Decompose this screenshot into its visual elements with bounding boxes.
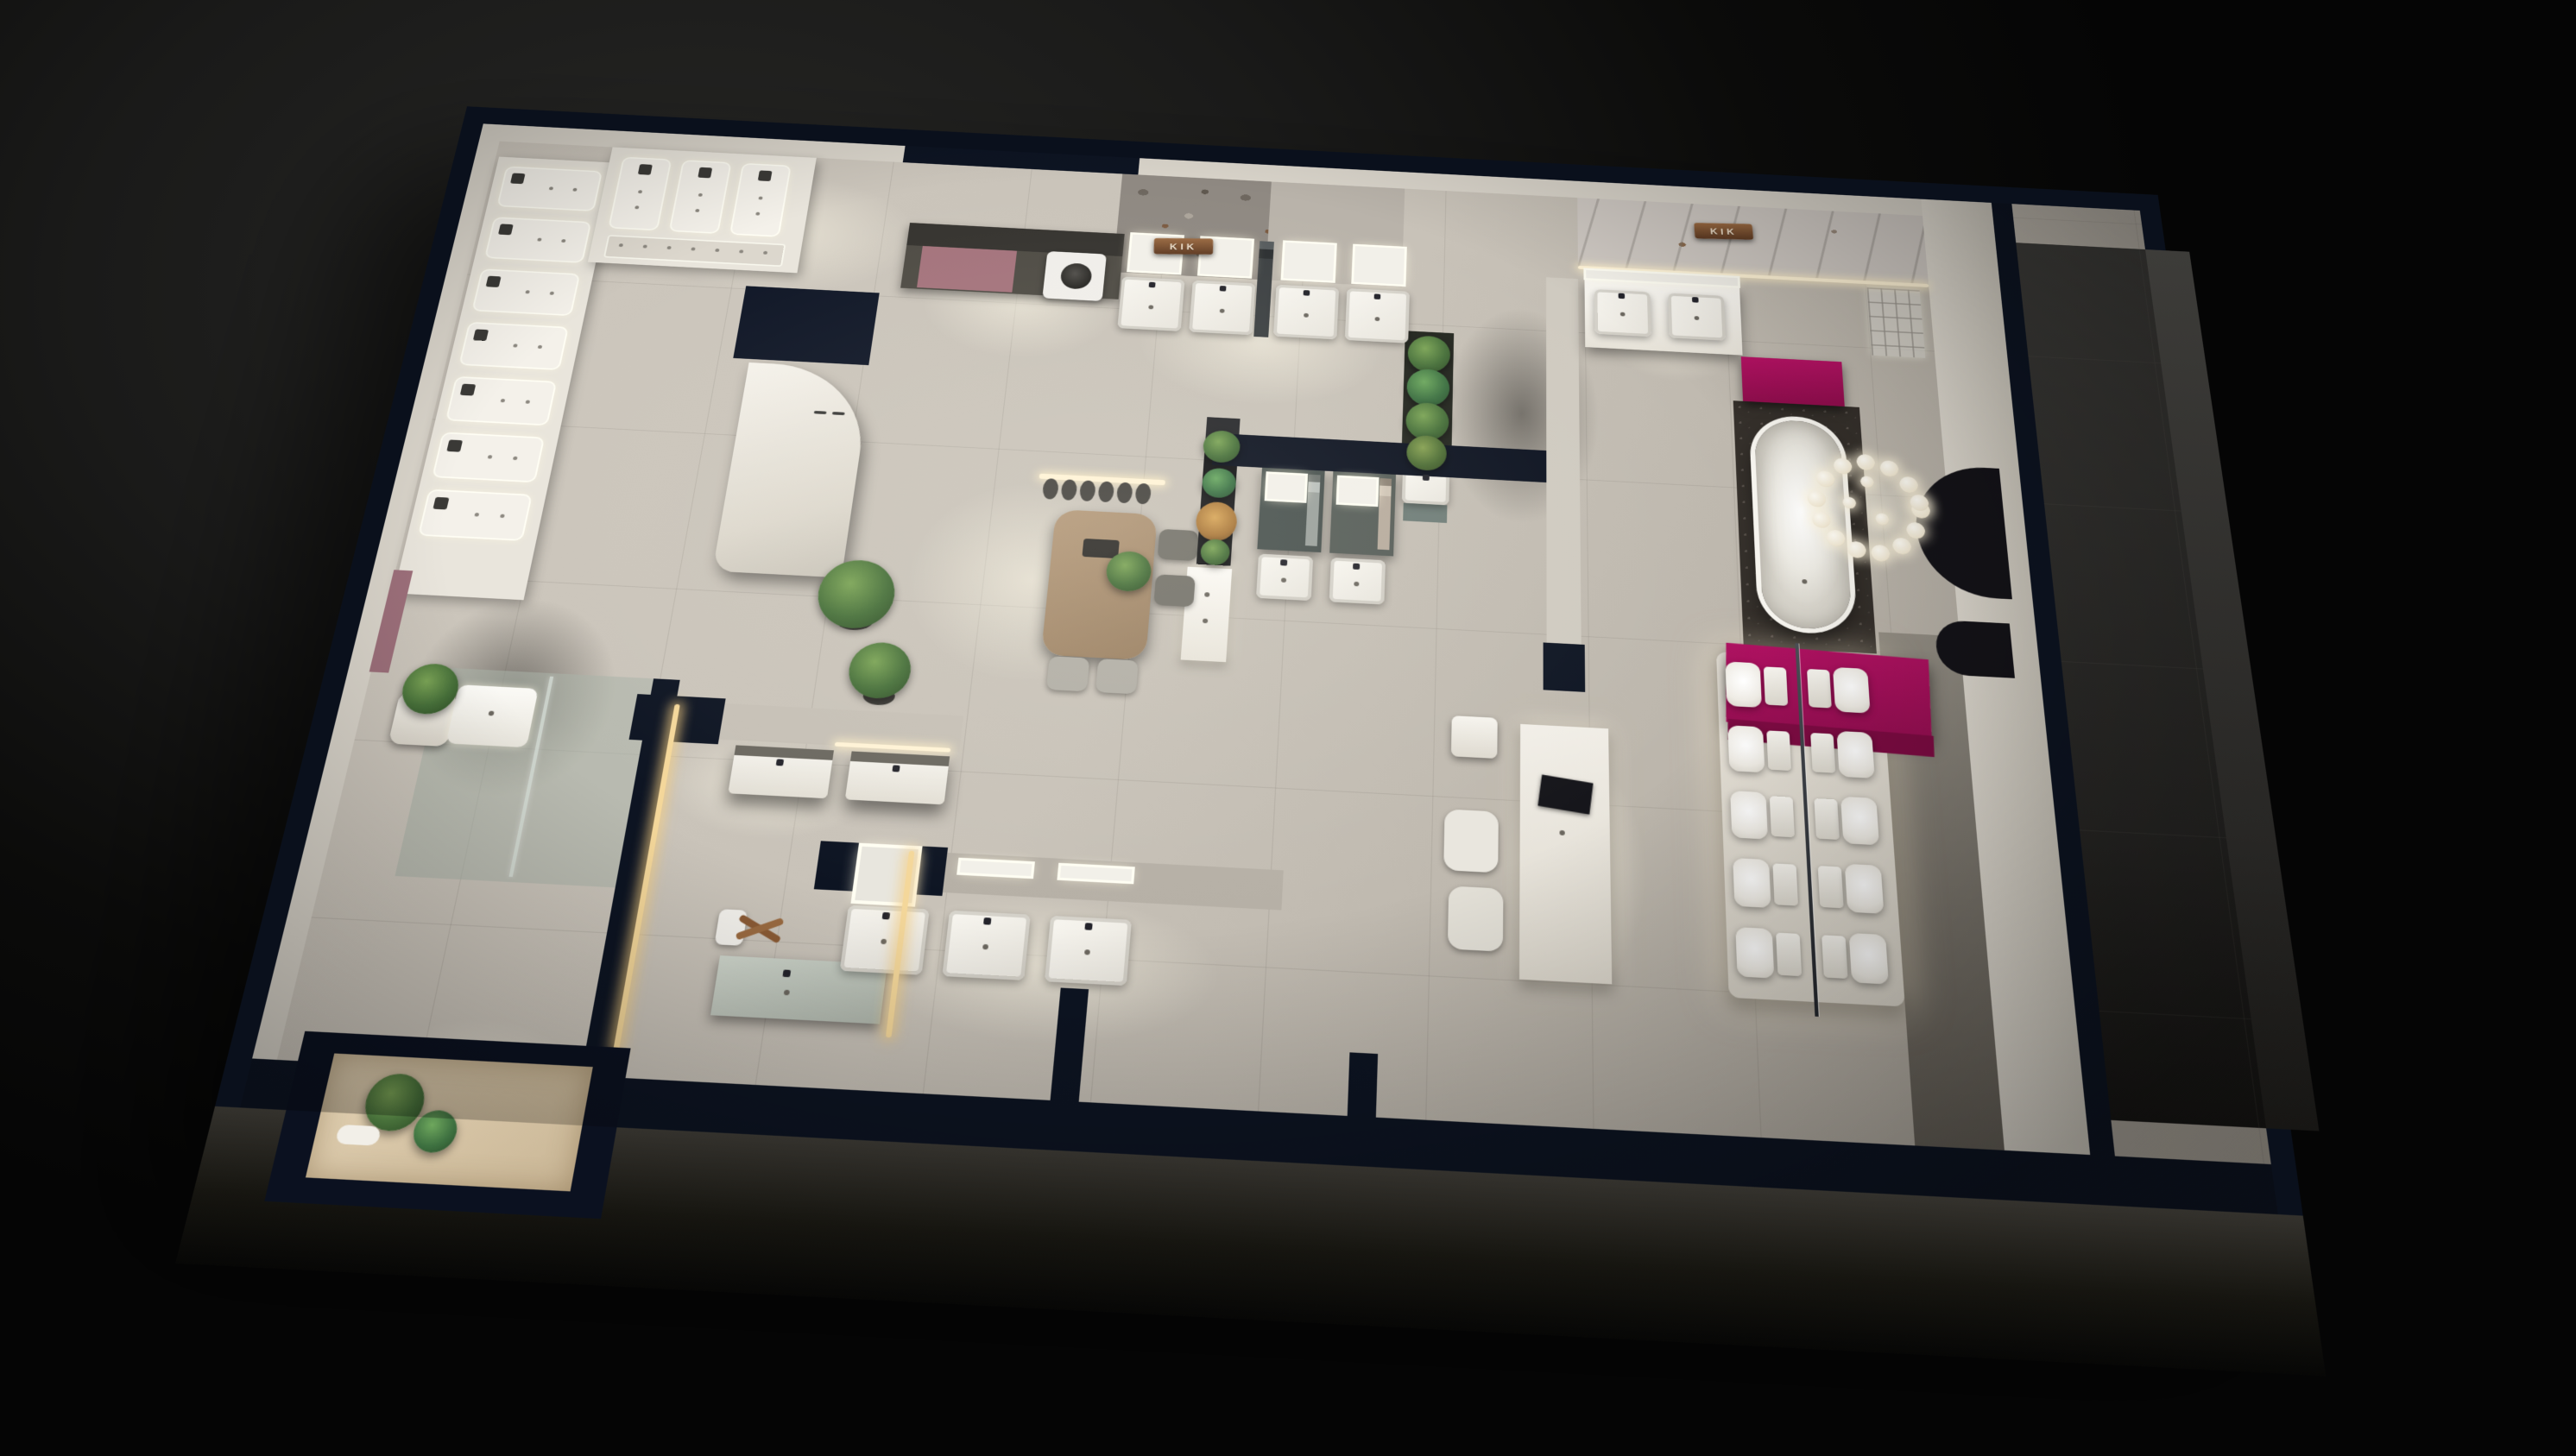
shower-head-icon <box>432 497 449 510</box>
annex-white-pot <box>335 1125 382 1146</box>
vanity-mirror <box>1267 474 1305 501</box>
reception-backdrop-block <box>733 286 879 365</box>
hand-shower-knob <box>695 209 699 212</box>
toilet <box>1836 731 1874 778</box>
shower-panel <box>474 270 578 314</box>
hand-shower-knob <box>755 212 760 216</box>
faucet <box>1374 293 1381 299</box>
visitor-chair <box>1443 809 1499 873</box>
stub-wall <box>1348 1052 1378 1117</box>
shower-tray <box>446 684 539 747</box>
toilet <box>1725 661 1762 708</box>
hand-shower-knob <box>758 197 762 200</box>
drain <box>1695 316 1700 320</box>
shower-panel <box>461 324 567 369</box>
freestanding-bathtub <box>1753 419 1853 631</box>
desk-fine-print <box>832 412 845 415</box>
hand-shower-knob <box>537 238 542 242</box>
glass-block-wall <box>1867 287 1926 358</box>
hand-shower-knob <box>638 190 642 193</box>
faucet <box>782 969 791 977</box>
showroom-render-page: { "scene": { "type": "3d-floorplan-rende… <box>0 0 2576 1456</box>
corridor-wall-cap <box>1544 642 1586 691</box>
faucet <box>1423 475 1430 481</box>
shower-head-icon <box>510 173 525 184</box>
toilet-cistern <box>1822 935 1848 979</box>
shower-panel <box>486 218 590 262</box>
magenta-vanity-counter <box>1741 356 1845 407</box>
hand-shower-knob <box>525 400 530 403</box>
toilet-cistern <box>1764 666 1788 706</box>
shower-panel <box>420 491 530 539</box>
dining-chair <box>1158 529 1199 561</box>
shower-panel <box>447 378 555 425</box>
kik-sign-label: KIK <box>1170 241 1197 251</box>
shower-head-icon <box>446 439 463 451</box>
dining-chair <box>1095 659 1139 694</box>
shower-head-icon <box>486 276 502 287</box>
shower-panel <box>434 433 543 481</box>
toilet <box>1840 797 1879 846</box>
toilet-cistern <box>1807 669 1832 709</box>
faucet <box>1304 290 1310 296</box>
toilet <box>1733 858 1771 908</box>
faucet <box>892 765 900 772</box>
shower-head-icon <box>638 164 653 175</box>
hand-shower-knob <box>501 399 506 402</box>
vanity-mirror <box>1339 477 1377 504</box>
vanity-mirror <box>1354 246 1405 285</box>
hand-shower-knob <box>513 457 518 460</box>
faucet <box>1619 293 1626 299</box>
toilet <box>1735 927 1774 979</box>
hand-shower-knob <box>561 239 565 243</box>
toilet <box>1845 864 1885 914</box>
white-cube-stool <box>1451 715 1498 759</box>
desk-fine-print <box>814 411 827 414</box>
shower-panel <box>499 167 601 210</box>
hand-shower-knob <box>538 345 543 349</box>
faucet <box>776 759 784 766</box>
shower-head-icon <box>758 170 773 181</box>
hand-shower-knob <box>474 513 479 517</box>
shower-head-icon <box>473 329 489 341</box>
faucet <box>1353 564 1360 570</box>
vanity-mirror <box>1283 243 1335 281</box>
hand-shower-knob <box>572 188 577 192</box>
toilet-cistern <box>1818 866 1844 908</box>
drain <box>1620 312 1626 317</box>
toilet-cistern <box>1814 798 1840 840</box>
hand-shower-knob <box>549 186 553 190</box>
drain <box>1354 582 1359 587</box>
showroom-floorplan: KIK <box>240 123 2278 1214</box>
scene-stage: KIK <box>0 0 2576 1456</box>
hand-shower-knob <box>698 193 703 197</box>
drain <box>1375 317 1380 321</box>
desk-accessory <box>1559 830 1564 835</box>
toilet <box>1833 667 1871 714</box>
shower-head-icon <box>460 384 476 396</box>
tub-drain <box>1802 579 1807 584</box>
visitor-chair <box>1448 886 1504 951</box>
open-shelf-column <box>1378 478 1392 550</box>
toilet <box>1730 791 1768 839</box>
kik-sign-stone-wall: KIK <box>1154 238 1214 255</box>
corridor-wall <box>1546 277 1582 679</box>
hand-shower-knob <box>525 290 530 293</box>
faucet <box>983 917 991 925</box>
toilet-cistern <box>1776 933 1802 977</box>
faucet <box>1084 923 1092 930</box>
hand-shower-knob <box>500 514 505 519</box>
toilet-cistern <box>1770 796 1795 837</box>
toilet-cistern <box>1766 730 1791 771</box>
hand-shower-knob <box>488 455 493 458</box>
basin-cabinet-teal <box>1403 503 1447 523</box>
faucet <box>1692 297 1699 303</box>
toilet-cistern <box>1810 733 1835 773</box>
toilet-cistern <box>1772 863 1798 905</box>
faucet <box>882 912 891 920</box>
kik-sign-label: KIK <box>1709 226 1737 236</box>
faucet <box>1220 286 1227 292</box>
dining-chair <box>1153 574 1196 607</box>
shower-head-icon <box>498 224 514 235</box>
hand-shower-knob <box>635 205 639 209</box>
kik-sign-marble-wall: KIK <box>1694 223 1753 240</box>
shower-head-icon <box>698 167 712 179</box>
toilet <box>1849 933 1889 985</box>
toilet <box>1727 725 1765 772</box>
hand-shower-knob <box>513 344 518 347</box>
faucet <box>1149 282 1156 288</box>
kitchen-pink-panel <box>917 246 1017 293</box>
hand-shower-knob <box>550 292 555 295</box>
service-desk <box>1519 724 1612 984</box>
dining-chair <box>1046 656 1089 691</box>
faucet <box>1280 559 1287 565</box>
